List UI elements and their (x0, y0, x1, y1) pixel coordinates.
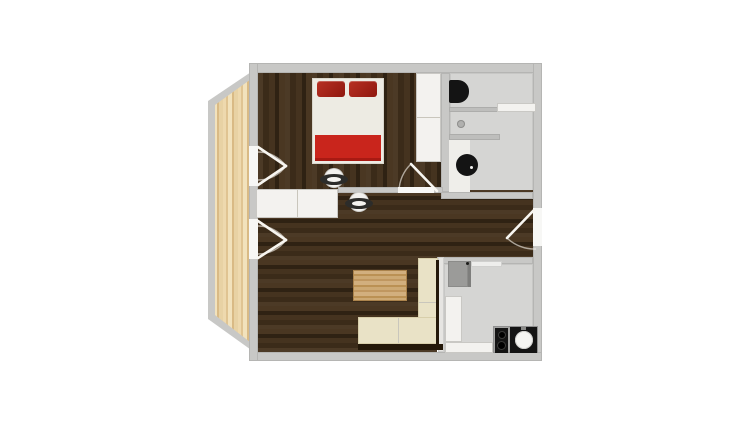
shower-drain (457, 120, 465, 128)
side-table-2 (345, 191, 373, 213)
coffee-table (353, 270, 407, 301)
pillow-left (317, 81, 345, 97)
bathroom-divider-1 (449, 107, 498, 112)
wall-top (249, 63, 542, 73)
sideboard (256, 189, 338, 218)
door-opening-bedroom (398, 187, 434, 193)
door-opening-balcony-bedroom (249, 146, 258, 186)
sideboard-divider (297, 190, 298, 217)
kitchen-counter-vertical (445, 296, 462, 342)
burner-2 (497, 341, 506, 350)
burner-1 (498, 331, 506, 339)
sink-unit (510, 327, 537, 353)
wall-bathroom-hall (441, 192, 533, 199)
side-table-1-inner (327, 177, 341, 182)
blanket (315, 135, 381, 161)
washing-machine (456, 154, 478, 176)
door-opening-balcony-living (249, 219, 258, 259)
kitchen-counter-bottom (445, 342, 493, 353)
door-opening-entrance (533, 208, 542, 246)
sofa-bottom-seam (398, 318, 399, 343)
side-table-1 (320, 167, 348, 189)
bed (312, 78, 384, 164)
sofa-right-seam (419, 302, 437, 303)
sofa-bottom (358, 317, 438, 344)
faucet (521, 327, 526, 330)
toilet (449, 80, 469, 103)
wardrobe (416, 73, 441, 162)
fridge-handle (466, 262, 469, 265)
pillow-right (349, 81, 377, 97)
washer-door-dot (470, 166, 473, 169)
balcony (208, 60, 254, 362)
sink-bowl (515, 331, 533, 349)
bathroom-shelf (497, 103, 536, 112)
sofa-front-edge (358, 344, 443, 350)
kitchen-shelf (471, 261, 502, 267)
floor-plan (0, 0, 754, 435)
cooktop (495, 328, 508, 353)
wall-bottom (249, 352, 542, 361)
side-table-2-inner (352, 201, 366, 206)
media-strip (436, 260, 439, 345)
wardrobe-divider (417, 117, 440, 118)
